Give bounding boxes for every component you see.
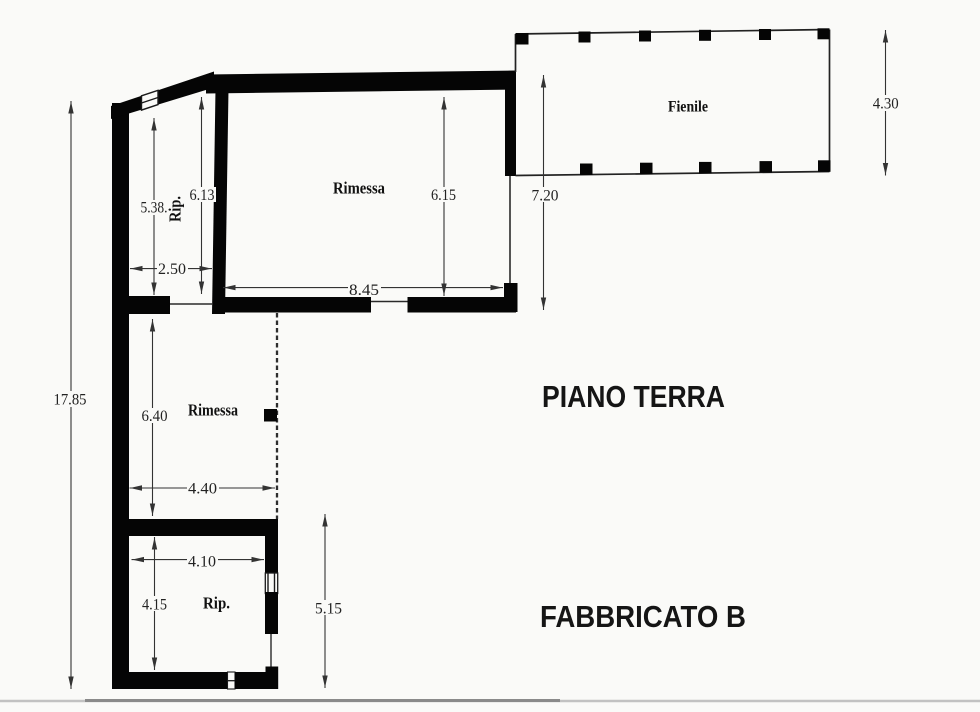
svg-text:Rimessa: Rimessa <box>333 179 385 198</box>
svg-text:5.38.: 5.38. <box>141 200 168 217</box>
svg-text:Fienile: Fienile <box>668 99 708 116</box>
svg-text:4.10: 4.10 <box>188 554 216 571</box>
svg-text:PIANO TERRA: PIANO TERRA <box>542 379 725 414</box>
svg-text:8.45: 8.45 <box>349 282 379 299</box>
svg-text:7.20: 7.20 <box>532 188 559 205</box>
svg-text:Rimessa: Rimessa <box>188 401 238 420</box>
svg-text:FABBRICATO B: FABBRICATO B <box>540 599 746 634</box>
svg-text:6.15: 6.15 <box>431 187 456 204</box>
svg-text:4.15: 4.15 <box>142 597 167 614</box>
svg-text:4.40: 4.40 <box>188 480 217 497</box>
svg-text:5.15: 5.15 <box>315 601 342 618</box>
svg-text:Rip.: Rip. <box>166 196 185 222</box>
svg-text:17.85: 17.85 <box>54 392 87 409</box>
svg-text:2.50: 2.50 <box>158 261 186 278</box>
svg-text:6.13: 6.13 <box>190 187 215 204</box>
svg-text:6.40: 6.40 <box>142 408 168 425</box>
svg-text:4.30: 4.30 <box>873 96 899 113</box>
svg-text:Rip.: Rip. <box>203 594 230 613</box>
